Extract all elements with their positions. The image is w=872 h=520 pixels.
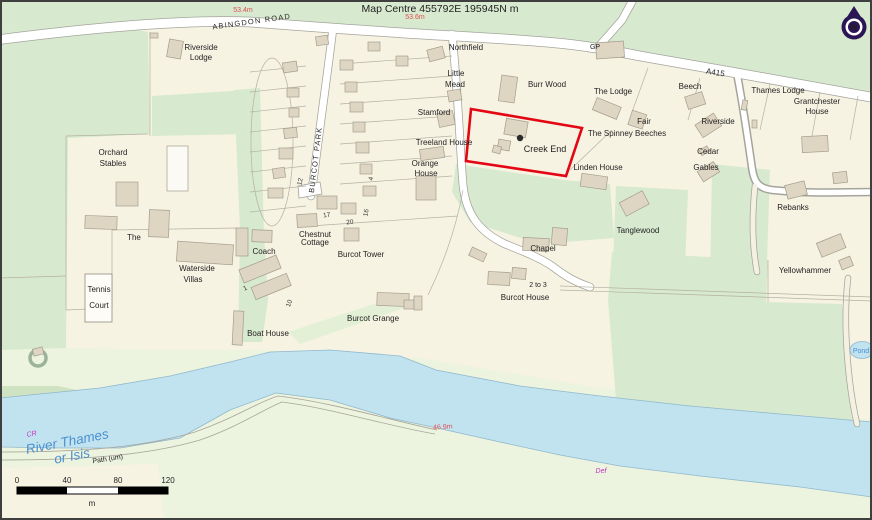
spot-height-536: 53.6m xyxy=(405,14,425,21)
scale-tick-80: 80 xyxy=(114,476,123,485)
label-def: Def xyxy=(596,468,608,475)
svg-text:Court: Court xyxy=(89,301,109,310)
label-gables: Gables xyxy=(693,163,718,172)
house-number-17: 17 xyxy=(323,211,332,219)
label-stamford: Stamford xyxy=(418,108,450,117)
svg-text:Villas: Villas xyxy=(184,275,203,284)
scale-tick-120: 120 xyxy=(161,476,175,485)
label-orange-house: Orange xyxy=(412,159,439,168)
label-2-to-3: 2 to 3 xyxy=(529,282,547,289)
label-northfield: Northfield xyxy=(449,43,483,52)
label-burcot-grange: Burcot Grange xyxy=(347,314,400,323)
label-burr-wood: Burr Wood xyxy=(528,80,566,89)
label-the: The xyxy=(127,233,141,242)
north-arrow-label: N xyxy=(851,22,858,32)
map-centre-title: Map Centre 455792E 195945N m xyxy=(361,3,518,15)
label-burcot-house: Burcot House xyxy=(501,293,550,302)
scale-unit: m xyxy=(89,499,96,508)
label-orchard-stables: Orchard xyxy=(99,148,128,157)
label-treeland-house: Treeland House xyxy=(416,138,473,147)
label-cedar: Cedar xyxy=(697,147,719,156)
svg-text:Lodge: Lodge xyxy=(190,53,213,62)
label-burcot-tower: Burcot Tower xyxy=(338,250,385,259)
svg-text:House: House xyxy=(805,107,829,116)
label-pond: Pond xyxy=(853,348,869,355)
label-riverside-lodge: Riverside xyxy=(184,43,218,52)
label-the-lodge: The Lodge xyxy=(594,87,633,96)
svg-text:House: House xyxy=(414,169,438,178)
label-spinney-beeches: The Spinney Beeches xyxy=(588,129,666,138)
spot-height-469: 46.9m xyxy=(433,423,453,431)
label-coach: Coach xyxy=(252,247,275,256)
tennis-court-outline xyxy=(85,274,112,322)
label-riverside-east: Riverside xyxy=(701,117,735,126)
label-tennis-court: Tennis xyxy=(87,285,110,294)
label-linden-house: Linden House xyxy=(573,163,623,172)
label-thames-lodge: Thames Lodge xyxy=(751,86,805,95)
label-grantchester-house: Grantchester xyxy=(794,97,841,106)
label-yellowhammer: Yellowhammer xyxy=(779,266,832,275)
creek-end-feature-dot xyxy=(517,135,523,141)
spot-height-534: 53.4m xyxy=(233,7,253,14)
label-boat-house: Boat House xyxy=(247,329,289,338)
label-little-mead: Little xyxy=(448,69,465,78)
label-tanglewood: Tanglewood xyxy=(617,226,660,235)
label-rebanks: Rebanks xyxy=(777,203,809,212)
label-gp: GP xyxy=(590,44,600,51)
site-plan-map: Map Centre 455792E 195945N m 53.4m 53.6m… xyxy=(0,0,872,520)
map-canvas[interactable]: Map Centre 455792E 195945N m 53.4m 53.6m… xyxy=(0,0,872,520)
house-number-20: 20 xyxy=(346,219,354,227)
svg-text:Cottage: Cottage xyxy=(301,238,330,247)
label-waterside-villas: Waterside xyxy=(179,264,215,273)
svg-text:Stables: Stables xyxy=(100,159,127,168)
scale-tick-40: 40 xyxy=(63,476,72,485)
label-beech: Beech xyxy=(679,82,702,91)
scale-tick-0: 0 xyxy=(15,476,20,485)
svg-text:Mead: Mead xyxy=(445,80,465,89)
label-fair: Fair xyxy=(637,117,651,126)
label-creek-end: Creek End xyxy=(524,144,567,154)
label-chapel: Chapel xyxy=(530,244,556,253)
